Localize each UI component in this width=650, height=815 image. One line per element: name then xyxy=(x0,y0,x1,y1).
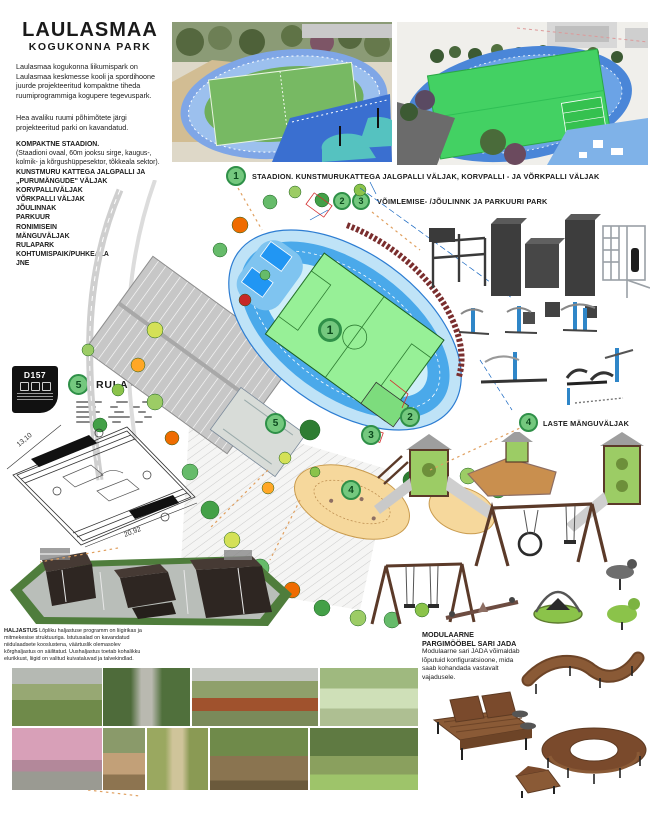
photo-tree-alley-path xyxy=(103,668,190,726)
badge-code: D157 xyxy=(12,370,58,380)
stadium-render-aerial xyxy=(397,22,648,165)
intro-paragraph-1: Laulasmaa kogukonna liikumispark on Laul… xyxy=(16,62,166,101)
plan-marker-5: 5 xyxy=(265,413,286,434)
park-furniture-render xyxy=(420,636,650,801)
stadium-render-perspective xyxy=(172,22,392,162)
landscape-note: HALJASTUS Lõpliku haljastuse programm on… xyxy=(4,628,152,663)
page-subtitle: KOGUKONNA PARK xyxy=(14,41,166,53)
photo-red-path-planting xyxy=(192,668,318,726)
photo-wildflower-street xyxy=(12,668,102,726)
photo-cherry-blossoms xyxy=(12,728,102,790)
plan-marker-1: 1 xyxy=(318,318,342,342)
gym-equipment-render xyxy=(455,300,650,405)
photo-bench-meadow xyxy=(320,668,418,726)
plan-marker-2: 2 xyxy=(400,407,420,427)
landscape-note-heading: HALJASTUS xyxy=(4,628,38,634)
badge-icons xyxy=(12,382,58,391)
photo-terraced-garden xyxy=(103,728,145,790)
photo-gravel-path-grasses xyxy=(147,728,208,790)
photo-shrub-border-lawn xyxy=(310,728,418,790)
feature-item: (Staadioni ovaal, 60m jooksu sirge, kaug… xyxy=(16,149,168,167)
skatepark-dimension-a: 13,10 xyxy=(16,432,34,449)
callout-4-label: LASTE MÄNGUVÄLJAK xyxy=(543,419,648,428)
playground-equipment-render xyxy=(368,432,650,632)
skatepark-render xyxy=(0,520,295,635)
page-title: LAULASMAA xyxy=(14,20,166,40)
intro-paragraph-2: Hea avaliku ruumi põhimõtete järgi proje… xyxy=(16,113,166,132)
poster: LAULASMAA KOGUKONNA PARK Laulasmaa koguk… xyxy=(0,0,650,815)
photo-hammock-playground xyxy=(210,728,308,790)
feature-item: KOMPAKTNE STAADION. xyxy=(16,140,168,149)
skatepark-badge: D157 xyxy=(12,366,58,413)
plan-marker-4: 4 xyxy=(341,480,361,500)
